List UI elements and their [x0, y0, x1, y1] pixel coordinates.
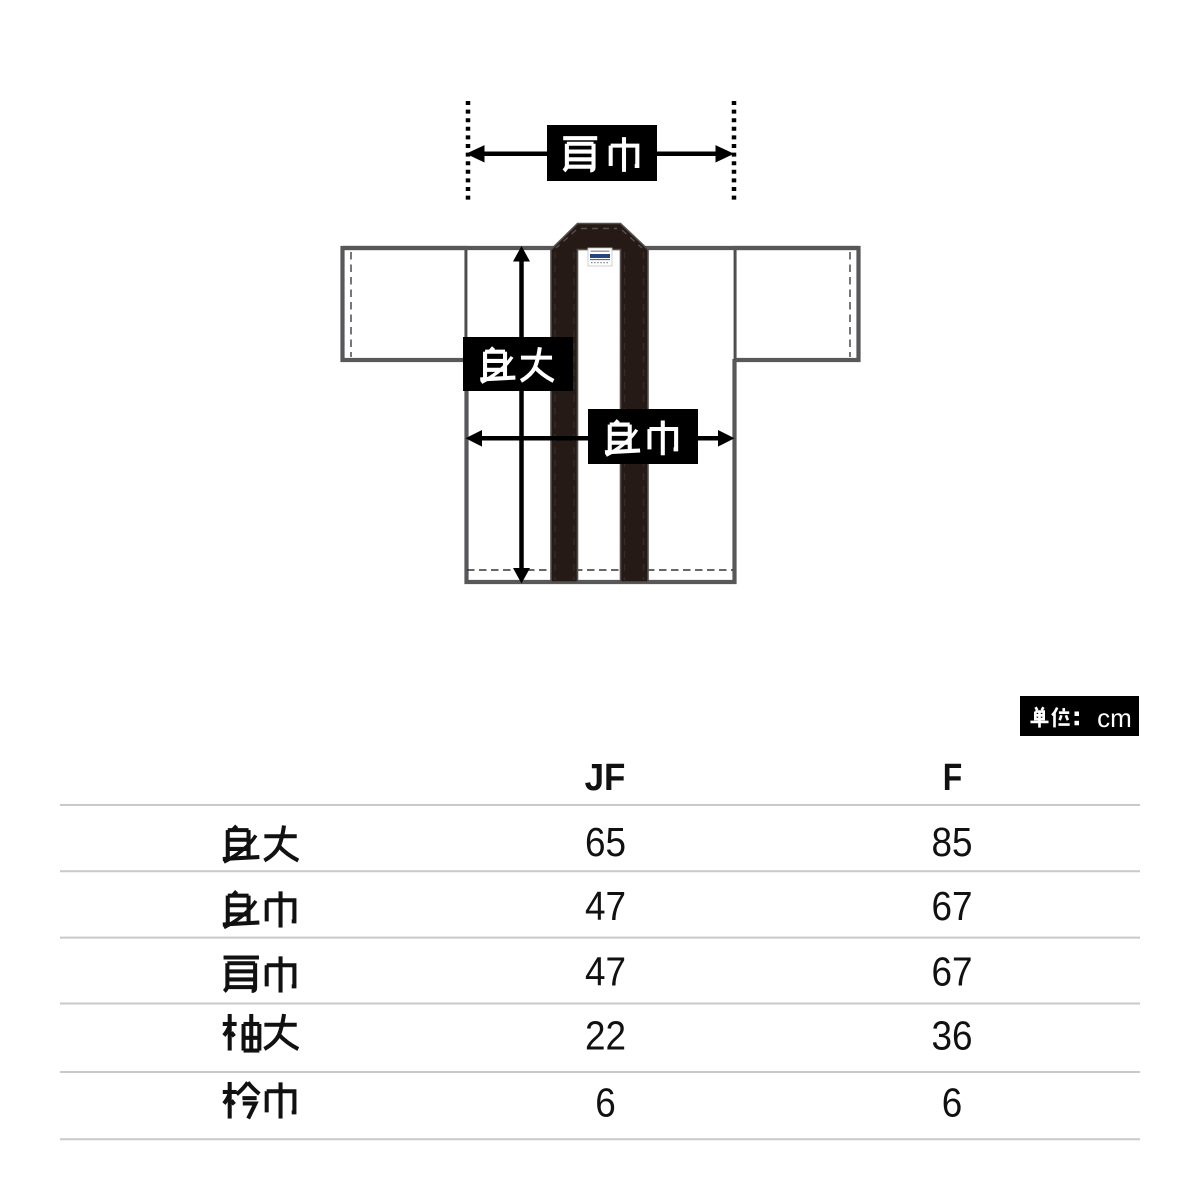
svg-text:F: F: [943, 756, 962, 798]
svg-text:85: 85: [931, 820, 972, 865]
svg-text:47: 47: [585, 884, 626, 929]
svg-text:6: 6: [595, 1081, 616, 1126]
svg-text:22: 22: [585, 1014, 626, 1059]
svg-text:cm: cm: [1097, 703, 1132, 733]
svg-text:65: 65: [585, 820, 626, 865]
svg-text:67: 67: [931, 950, 972, 995]
svg-text:JF: JF: [585, 756, 626, 799]
svg-text:67: 67: [931, 884, 972, 929]
svg-text:6: 6: [942, 1081, 963, 1126]
svg-text:36: 36: [931, 1014, 972, 1059]
svg-text:47: 47: [585, 950, 626, 995]
